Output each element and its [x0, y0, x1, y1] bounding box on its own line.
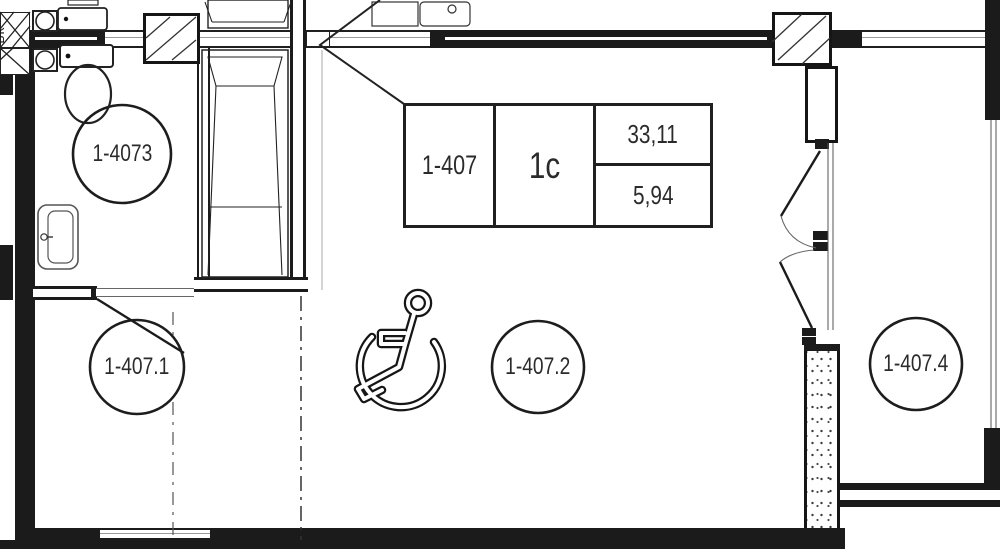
wheelchair-accessible-icon — [358, 293, 442, 407]
riser-label: ВК — [0, 15, 15, 55]
room-tag-adjacent: 1-407.4 — [866, 349, 966, 379]
door-leaf — [781, 151, 820, 216]
sink-tap — [41, 234, 47, 240]
tank-button — [64, 17, 68, 21]
stamp-total-area: 33,11 — [596, 106, 710, 166]
door-leaf — [780, 262, 812, 328]
stamp-layout-type: 1c — [496, 106, 596, 225]
toilet-bowl — [65, 65, 111, 123]
column-circle — [36, 12, 54, 30]
stamp-living-area: 5,94 — [596, 166, 710, 226]
neighbor-fixture — [372, 2, 418, 26]
bed-pillow — [208, 57, 282, 86]
door-swing-arc — [780, 250, 814, 262]
column-hatch — [772, 14, 830, 64]
stamp-flat-number: 1-407 — [406, 106, 496, 225]
apartment-stamp-table: 1-407 1c 33,11 5,94 — [403, 103, 713, 228]
vent-shaft-hatch — [146, 17, 196, 60]
room-tag-room: 1-407.2 — [488, 352, 588, 382]
neighbor-fixture — [68, 0, 98, 5]
door-swing-arc — [781, 216, 816, 248]
bed-blanket-lines — [208, 86, 282, 275]
neighbor-bed — [208, 0, 288, 28]
tank-button — [66, 54, 71, 59]
plan-linework — [0, 0, 1000, 549]
floor-plan: 1-407 1c 33,11 5,94 1-4073 1-407.1 1-407… — [0, 0, 1000, 549]
neighbor-fixture — [420, 2, 470, 26]
room-tag-hall: 1-407.1 — [87, 352, 187, 382]
column-circle — [36, 51, 54, 69]
room-tag-bathroom: 1-4073 — [72, 139, 172, 169]
